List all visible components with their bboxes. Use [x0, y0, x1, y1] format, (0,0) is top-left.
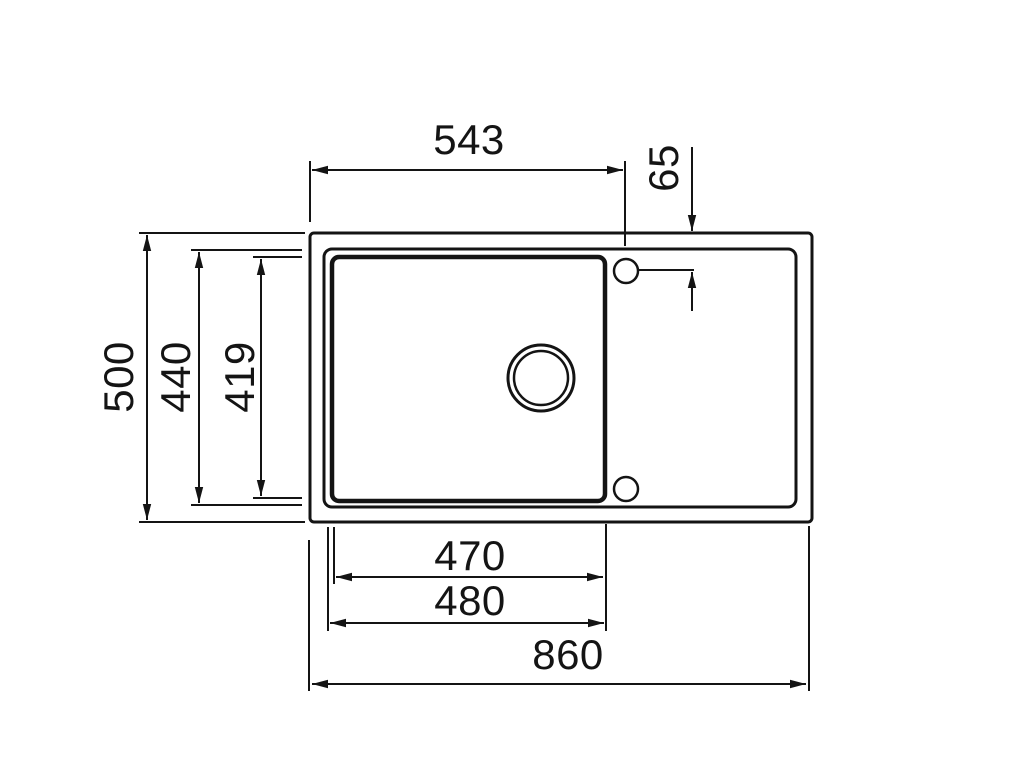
drain-circle-outer — [508, 345, 574, 411]
dim-basin-width-outer-label: 480 — [434, 580, 506, 622]
dim-overall-width-label: 860 — [532, 634, 604, 676]
tap-hole-bottom — [614, 477, 638, 501]
basin-outline — [332, 257, 605, 501]
sink-outer-outline — [310, 233, 812, 522]
sink-dimension-drawing: 543 65 500 440 419 470 480 860 — [0, 0, 1024, 768]
dim-top-width-label: 543 — [433, 119, 505, 161]
dim-basin-depth-label: 419 — [219, 341, 261, 413]
dim-overall-depth-label: 500 — [98, 341, 140, 413]
sink-rim-outline — [324, 249, 796, 507]
dim-rim-depth-label: 440 — [155, 341, 197, 413]
tap-hole-top — [614, 259, 638, 283]
dim-basin-width-inner-label: 470 — [434, 535, 506, 577]
dim-tap-offset-label: 65 — [643, 144, 685, 192]
drain-circle-inner — [514, 351, 568, 405]
